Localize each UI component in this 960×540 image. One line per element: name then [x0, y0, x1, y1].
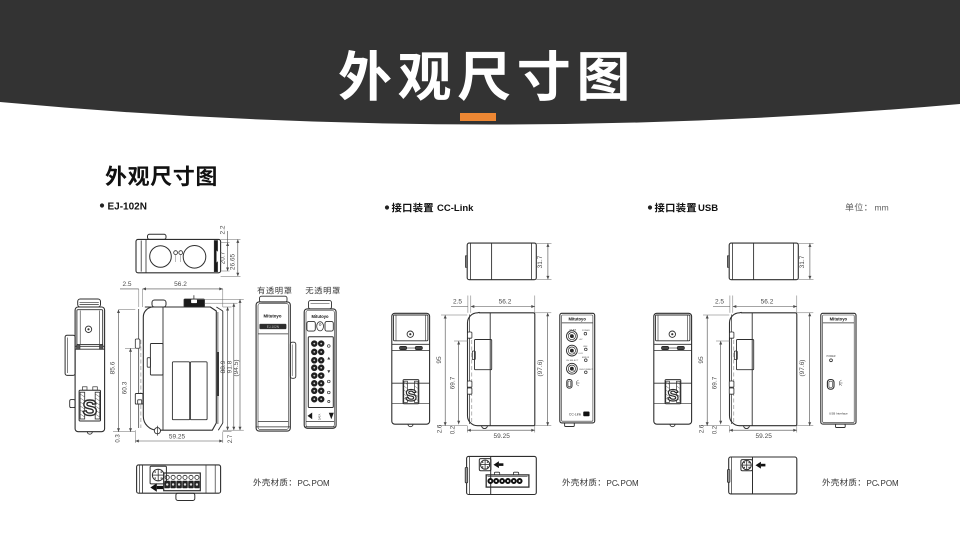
svg-text:20.7: 20.7	[220, 251, 227, 264]
svg-text:PC: PC	[298, 479, 309, 488]
svg-text:POWER: POWER	[582, 330, 590, 332]
svg-text:EJ-102N: EJ-102N	[267, 325, 280, 329]
svg-text:95: 95	[698, 356, 705, 364]
svg-text:2.5: 2.5	[453, 299, 462, 306]
svg-text:CC-Link: CC-Link	[437, 203, 474, 214]
svg-text:59.25: 59.25	[756, 433, 773, 440]
svg-text:56.2: 56.2	[761, 299, 774, 306]
svg-text:ERROR: ERROR	[582, 357, 590, 359]
svg-text:CHG/CONNECT: CHG/CONNECT	[579, 369, 594, 371]
svg-text:0.3: 0.3	[116, 434, 122, 443]
svg-text:69.7: 69.7	[449, 376, 456, 389]
svg-text:CH SELECT: CH SELECT	[566, 360, 579, 362]
svg-text:CC-Link: CC-Link	[569, 413, 582, 417]
svg-text:56.2: 56.2	[499, 299, 512, 306]
svg-text:mm: mm	[875, 203, 889, 213]
svg-text:CH A/B: CH A/B	[569, 329, 577, 332]
svg-text:DATA: DATA	[317, 413, 321, 420]
svg-text:PC: PC	[607, 479, 618, 488]
svg-text:(94.5): (94.5)	[233, 360, 240, 377]
svg-text:31.7: 31.7	[799, 255, 806, 268]
svg-text:2.2: 2.2	[219, 225, 226, 234]
svg-text:Mitutoyo: Mitutoyo	[830, 316, 848, 321]
svg-text:2.6: 2.6	[699, 424, 705, 433]
svg-text:Mitutoyo: Mitutoyo	[311, 314, 329, 319]
svg-text:2.7: 2.7	[228, 434, 234, 443]
svg-text:2.5: 2.5	[122, 281, 131, 288]
svg-text:POM: POM	[621, 479, 640, 488]
svg-text:60.3: 60.3	[121, 381, 128, 394]
svg-text:POM: POM	[881, 479, 900, 488]
svg-text:2.6: 2.6	[437, 424, 443, 433]
svg-text:POWER: POWER	[826, 355, 835, 358]
svg-text:0.2: 0.2	[450, 425, 456, 434]
svg-text:Mitutoyo: Mitutoyo	[568, 316, 586, 321]
svg-text:0.2: 0.2	[712, 425, 718, 434]
svg-text:S: S	[82, 396, 97, 421]
svg-text:59.25: 59.25	[169, 433, 186, 440]
svg-text:59.25: 59.25	[494, 433, 511, 440]
svg-text:+5V: +5V	[579, 339, 583, 341]
svg-text:69.7: 69.7	[711, 376, 718, 389]
svg-text:POM: POM	[312, 479, 331, 488]
svg-text:PC: PC	[867, 479, 878, 488]
svg-text:26.65: 26.65	[230, 253, 237, 270]
svg-text:(97.6): (97.6)	[537, 360, 544, 377]
svg-text:0.01: 0.01	[579, 353, 584, 355]
svg-text:S: S	[405, 386, 416, 405]
svg-text:56.2: 56.2	[174, 281, 187, 288]
svg-text:S: S	[667, 386, 678, 405]
svg-text:USB: USB	[698, 203, 718, 214]
svg-text:LINK: LINK	[583, 346, 588, 348]
svg-text:Mitutoyo: Mitutoyo	[264, 314, 282, 319]
svg-text:EJ-102N: EJ-102N	[108, 202, 147, 213]
svg-text:95: 95	[436, 356, 443, 364]
svg-text:USB Interface: USB Interface	[829, 412, 848, 416]
svg-text:2.5: 2.5	[715, 299, 724, 306]
svg-text:85.6: 85.6	[110, 361, 117, 374]
svg-text:31.7: 31.7	[537, 255, 544, 268]
svg-text:(97.6): (97.6)	[799, 360, 806, 377]
